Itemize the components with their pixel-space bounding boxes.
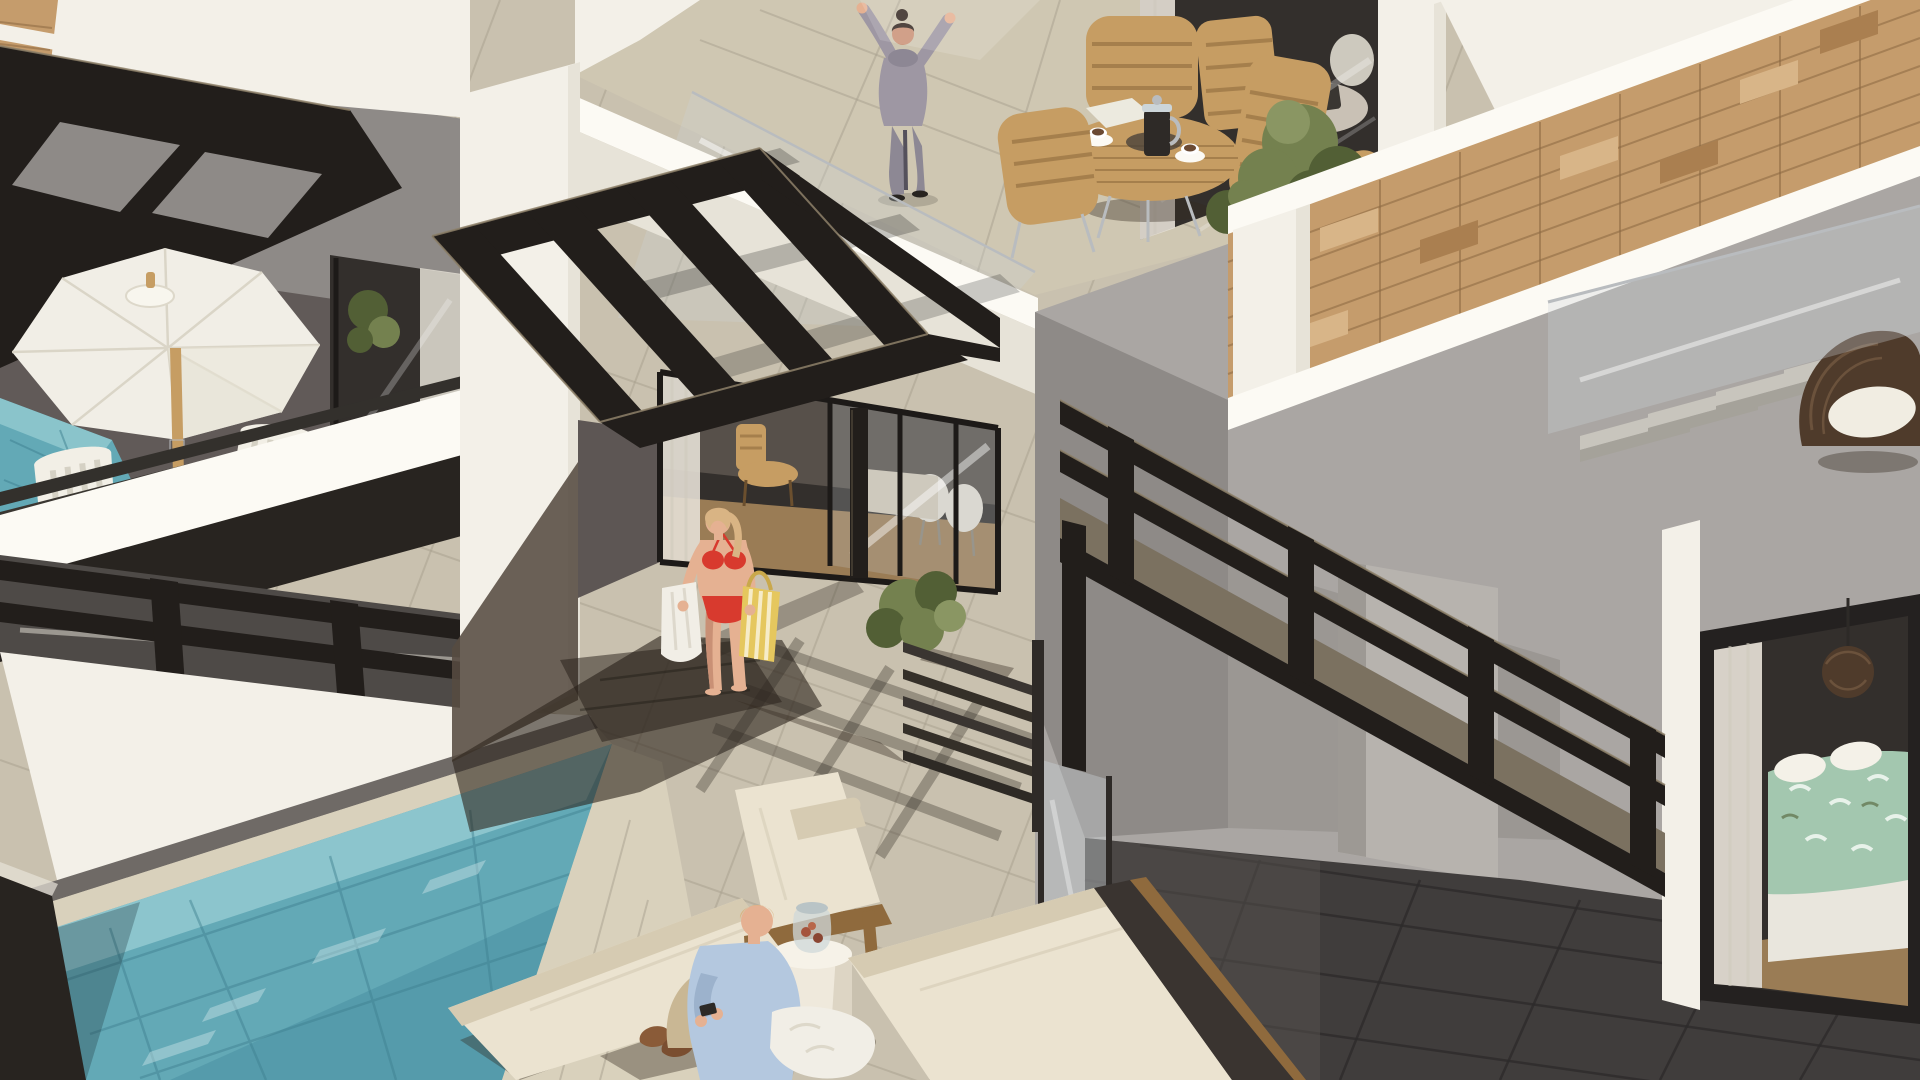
wooden-chair-back bbox=[1086, 16, 1198, 118]
sunlit-wall-edge bbox=[1662, 520, 1700, 1010]
glass-jar bbox=[793, 902, 831, 953]
bedroom-window bbox=[1698, 594, 1920, 1024]
villa-render-canvas bbox=[0, 0, 1920, 1080]
rooftop-column-shade bbox=[1434, 0, 1446, 134]
villa-render bbox=[0, 0, 1920, 1080]
pergola-post bbox=[1062, 520, 1086, 772]
bed bbox=[1768, 739, 1908, 962]
towel-on-arm bbox=[661, 582, 702, 662]
